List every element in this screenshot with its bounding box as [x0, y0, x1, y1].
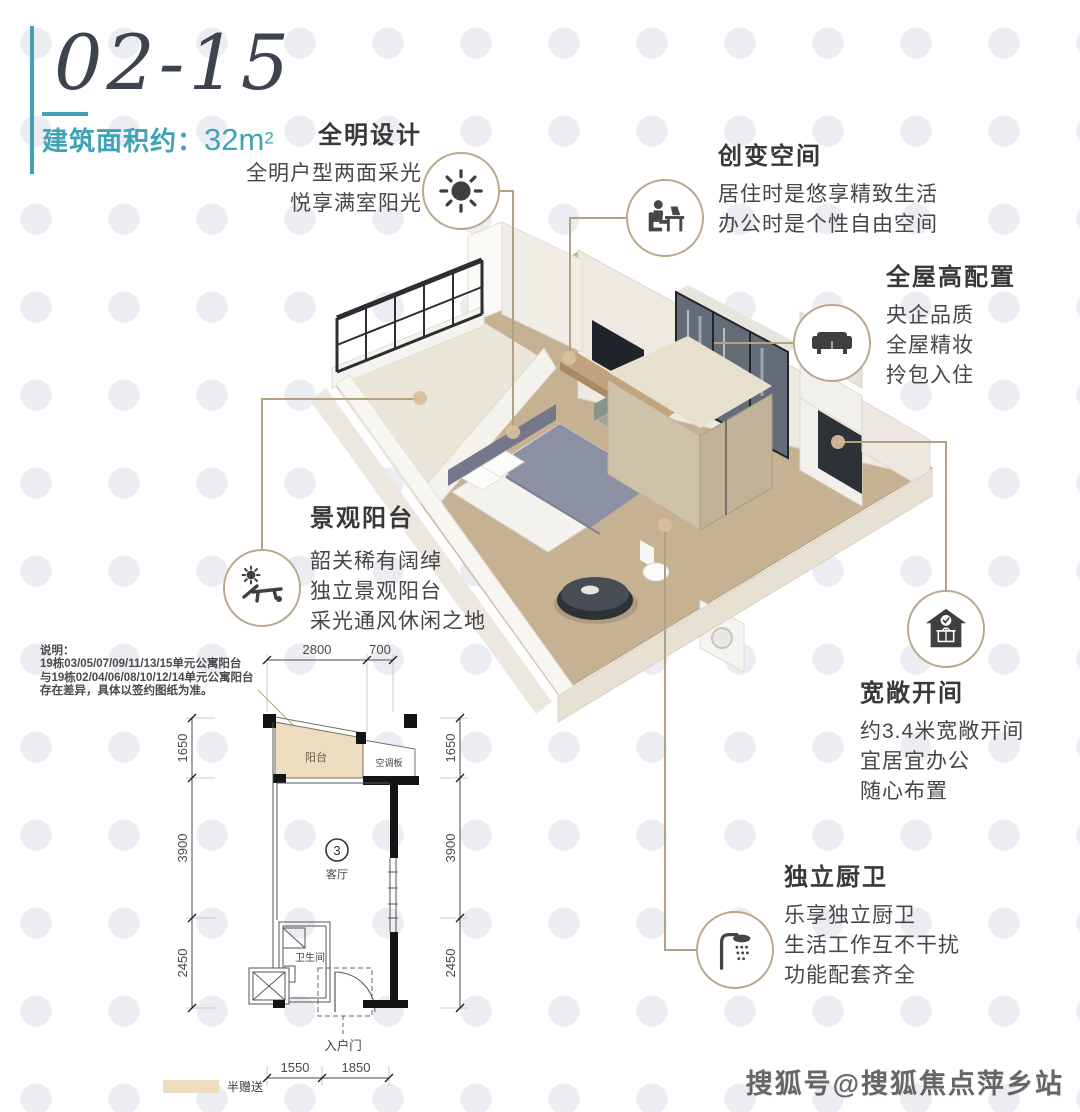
dim-top-2800: 2800	[303, 642, 332, 657]
feature-line: 随心布置	[860, 777, 1070, 807]
plan-unit-number: 3	[333, 843, 340, 858]
feature-title: 宽敞开间	[860, 680, 1070, 708]
feature-line: 居住时是悠享精致生活	[718, 180, 1018, 210]
feature-lines: 乐享独立厨卫 生活工作互不干扰 功能配套齐全	[784, 901, 1064, 991]
feature-kitchen-bath: 独立厨卫 乐享独立厨卫 生活工作互不干扰 功能配套齐全	[784, 864, 1064, 991]
sun-lounger-icon	[238, 564, 286, 612]
feature-lines: 韶关稀有阔绰 独立景观阳台 采光通风休闲之地	[310, 547, 570, 637]
feature-title: 创变空间	[718, 143, 1018, 171]
disclaimer-note: 说明： 19栋03/05/07/09/11/13/15单元公寓阳台 与19栋02…	[40, 644, 280, 699]
feature-lines: 约3.4米宽敞开间 宜居宜办公 随心布置	[860, 717, 1070, 807]
plan-balcony-label: 阳台	[305, 750, 327, 764]
full-furnish-badge	[793, 304, 871, 382]
house-check-icon	[923, 606, 969, 652]
dim-right-1650: 1650	[443, 734, 458, 763]
note-line: 19栋03/05/07/09/11/13/15单元公寓阳台	[40, 658, 280, 672]
dim-bottom-1850: 1850	[342, 1060, 371, 1075]
feature-title: 景观阳台	[310, 505, 570, 533]
feature-line: 生活工作互不干扰	[784, 931, 1064, 961]
dimension-labels: 2800 700 1650 3900 2450 1650 3900 2450 1…	[175, 642, 458, 1075]
feature-view-balcony: 景观阳台 韶关稀有阔绰 独立景观阳台 采光通风休闲之地	[310, 505, 570, 637]
view-balcony-badge	[223, 549, 301, 627]
plan-ac-board-label: 空调板	[375, 757, 402, 768]
feature-line: 独立景观阳台	[310, 577, 570, 607]
feature-line: 乐享独立厨卫	[784, 901, 1064, 931]
plan-closet	[249, 968, 289, 1004]
floor-plan: 2800 700 1650 3900 2450 1650 3900 2450 1…	[163, 642, 468, 1094]
shower-icon	[712, 927, 758, 973]
feature-line: 拎包入住	[886, 361, 1066, 391]
feature-line: 全屋精妆	[886, 331, 1066, 361]
sun-icon	[438, 168, 484, 214]
poster-page: 02-15 建筑面积约：32m2	[0, 0, 1080, 1112]
note-title: 说明：	[40, 644, 280, 658]
feature-wide-bay: 宽敞开间 约3.4米宽敞开间 宜居宜办公 随心布置	[860, 680, 1070, 807]
feature-line: 办公时是个性自由空间	[718, 210, 1018, 240]
apartment-3d-render	[310, 222, 932, 722]
feature-line: 功能配套齐全	[784, 961, 1064, 991]
person-at-desk-icon	[642, 195, 688, 241]
legend-half-gift-label: 半赠送	[227, 1079, 263, 1094]
feature-line: 宜居宜办公	[860, 747, 1070, 777]
flex-space-badge	[626, 179, 704, 257]
feature-line: 韶关稀有阔绰	[310, 547, 570, 577]
feature-title: 全明设计	[180, 122, 422, 150]
feature-line: 采光通风休闲之地	[310, 607, 570, 637]
feature-title: 独立厨卫	[784, 864, 1064, 892]
sofa-icon	[808, 319, 856, 367]
bright-design-badge	[422, 152, 500, 230]
feature-flex-space: 创变空间 居住时是悠享精致生活 办公时是个性自由空间	[718, 143, 1018, 240]
dim-left-1650: 1650	[175, 734, 190, 763]
legend-swatch	[163, 1080, 219, 1093]
note-line: 存在差异，具体以签约图纸为准。	[40, 685, 280, 699]
feature-title: 全屋高配置	[886, 264, 1066, 292]
dim-right-2450: 2450	[443, 949, 458, 978]
feature-bright-design: 全明设计 全明户型两面采光 悦享满室阳光	[180, 122, 422, 219]
feature-line: 央企品质	[886, 301, 1066, 331]
dim-left-3900: 3900	[175, 834, 190, 863]
dim-bottom-1550: 1550	[281, 1060, 310, 1075]
feature-line: 全明户型两面采光	[180, 159, 422, 189]
kitchen-bath-badge	[696, 911, 774, 989]
dim-left-2450: 2450	[175, 949, 190, 978]
dim-right-3900: 3900	[443, 834, 458, 863]
feature-lines: 全明户型两面采光 悦享满室阳光	[180, 159, 422, 219]
note-line: 与19栋02/04/06/08/10/12/14单元公寓阳台	[40, 672, 280, 686]
dim-top-700: 700	[369, 642, 391, 657]
tall-wall-left-face	[468, 222, 502, 324]
feature-lines: 居住时是悠享精致生活 办公时是个性自由空间	[718, 180, 1018, 240]
plan-living-room-label: 客厅	[326, 867, 348, 881]
wide-bay-badge	[907, 590, 985, 668]
feature-line: 约3.4米宽敞开间	[860, 717, 1070, 747]
plan-entry-door-label: 入户门	[324, 1038, 362, 1053]
plan-bathroom-label: 卫生间	[295, 951, 325, 964]
feature-full-furnish: 全屋高配置 央企品质 全屋精妆 拎包入住	[886, 264, 1066, 391]
feature-line: 悦享满室阳光	[180, 189, 422, 219]
watermark: 搜狐号@搜狐焦点萍乡站	[746, 1062, 1064, 1101]
feature-lines: 央企品质 全屋精妆 拎包入住	[886, 301, 1066, 391]
